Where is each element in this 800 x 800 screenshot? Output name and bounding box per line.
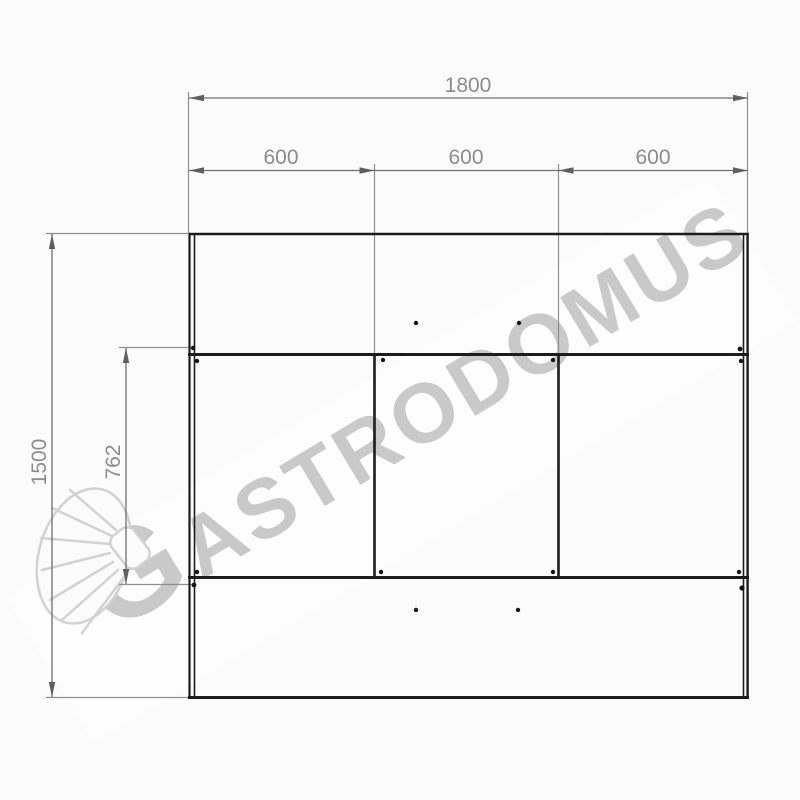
arrowhead-up-icon — [123, 348, 129, 363]
watermark-brand-text: GASTRODOMUS — [53, 150, 769, 657]
arrowhead-right-icon — [733, 167, 748, 173]
arrowhead-left-icon — [559, 167, 574, 173]
arrowhead-right-icon — [360, 167, 375, 173]
drawing-canvas: GASTRODOMUS 1800 — [0, 0, 800, 800]
dim-total-height-label: 1500 — [28, 439, 51, 486]
dim-total-width-label: 1800 — [445, 74, 492, 97]
technical-drawing-page: GASTRODOMUS 1800 — [0, 0, 800, 800]
arrowhead-left-icon — [189, 167, 204, 173]
dimension-sections: 600 600 600 — [189, 146, 748, 174]
arrowhead-right-icon — [733, 95, 748, 101]
dimension-total-width: 1800 — [189, 74, 748, 101]
arrowhead-up-icon — [49, 234, 55, 249]
dim-internal-height-label: 762 — [102, 444, 125, 479]
dim-section-2-label: 600 — [448, 146, 483, 169]
arrowhead-down-icon — [49, 682, 55, 697]
dim-section-3-label: 600 — [635, 146, 670, 169]
arrowhead-left-icon — [189, 95, 204, 101]
dim-section-1-label: 600 — [263, 146, 298, 169]
